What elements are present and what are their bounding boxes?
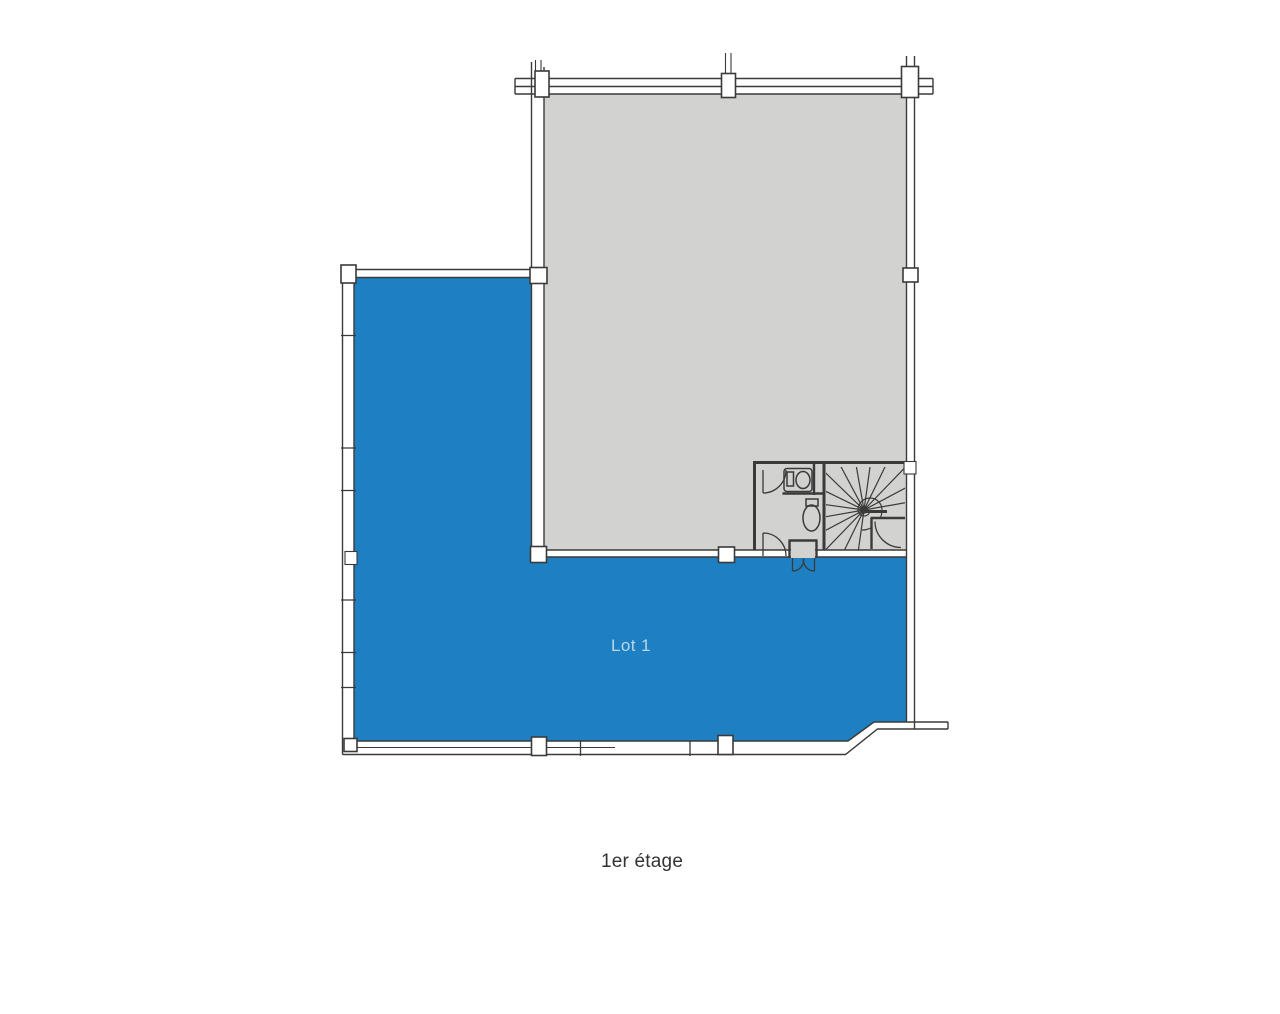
lot1-label: Lot 1 (611, 636, 651, 656)
common-area (544, 94, 907, 550)
grid-line-stubs (536, 53, 732, 76)
floor-title: 1er étage (601, 851, 683, 873)
floor-plan-page: Lot 1 1er étage (0, 0, 1280, 1014)
stair-newel-post (860, 506, 868, 514)
vestibule-floor (791, 542, 815, 558)
